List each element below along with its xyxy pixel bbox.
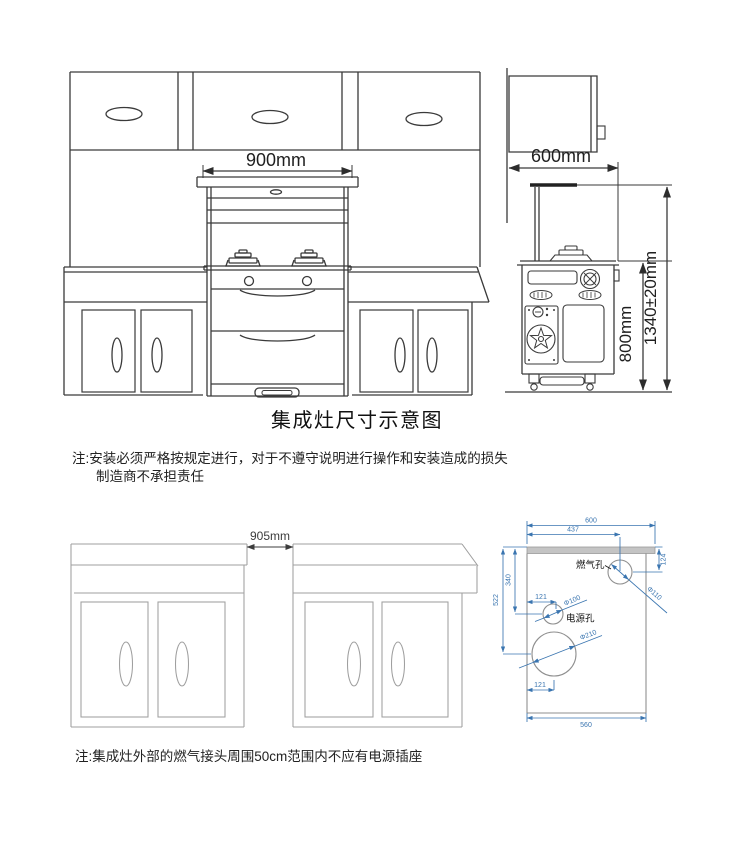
cabinet-handle: [106, 108, 142, 121]
caster-icon: [587, 384, 593, 390]
front-view: 900mm: [64, 72, 489, 397]
door-handle: [176, 642, 189, 686]
upper-cabinet-side: [509, 76, 605, 152]
fan-blade-icon: [531, 328, 552, 348]
drawer-handle: [240, 290, 315, 296]
side-total-height-label: 1340±20mm: [641, 251, 660, 345]
stove-front: [197, 177, 358, 397]
dim-bottom-width: 560: [580, 722, 592, 729]
side-view: 600mm 1340±20mm 800mm: [505, 68, 672, 392]
gap-view: 905mm: [71, 529, 478, 727]
vent-oval: [579, 291, 601, 300]
dim-gas-hole-x: 437: [567, 527, 579, 534]
vent-oval: [530, 291, 552, 300]
gas-hole-label: 燃气孔: [576, 559, 605, 571]
countertop-back-strip: [527, 547, 655, 554]
width-dimension-900: 900mm: [203, 150, 352, 178]
dim-gas-hole-y: 124: [661, 554, 668, 566]
socket-note: 注:集成灶外部的燃气接头周围50cm范围内不应有电源插座: [75, 748, 422, 764]
blower-panel: [525, 306, 558, 364]
left-base-cabinet: [71, 544, 247, 727]
cabinet-handle-side: [597, 126, 605, 139]
body-height-dimension-800: 800mm: [616, 263, 643, 390]
door-handle: [120, 642, 133, 686]
installation-diagram-page: 900mm: [0, 0, 735, 850]
cabinet-handle: [252, 111, 288, 124]
dim-drain-hole-x: 121: [534, 682, 546, 689]
door-handle: [427, 338, 437, 372]
adjustable-feet: [529, 374, 595, 390]
door-handle: [392, 642, 405, 686]
fan-icon: [581, 270, 600, 289]
dim-power-hole-y: 340: [506, 574, 513, 586]
side-depth-dim-label: 600mm: [531, 146, 591, 166]
burner-icon: [225, 250, 261, 266]
gap-dim-label: 905mm: [250, 529, 290, 543]
front-width-dim-label: 900mm: [246, 150, 306, 170]
display-panel: [528, 271, 577, 284]
stove-side: [517, 187, 619, 390]
diagram-title: 集成灶尺寸示意图: [271, 409, 443, 432]
hood-badge: [271, 190, 282, 194]
ignition-knob: [533, 307, 548, 317]
side-body-height-label: 800mm: [616, 306, 635, 363]
door-handle: [112, 338, 122, 372]
diagram-canvas: 900mm: [0, 0, 735, 850]
depth-dimension-600: 600mm: [509, 146, 618, 261]
burner-side-icon: [550, 255, 592, 261]
cutout-view: 600 437 124 340 522 121 121 560: [493, 518, 668, 730]
dim-power-hole-x: 121: [535, 594, 547, 601]
side-access-panel: [563, 305, 604, 362]
install-note-line1: 注:安装必须严格按规定进行，对于不遵守说明进行操作和安装造成的损失: [72, 450, 508, 466]
gap-dimension-905: 905mm: [247, 529, 293, 547]
control-knob: [303, 277, 312, 286]
door-handle: [152, 338, 162, 372]
dim-drain-hole-dia: Φ210: [579, 629, 598, 642]
dim-gas-hole-dia: Φ110: [645, 586, 662, 602]
burner-icon: [291, 250, 327, 266]
door-handle: [348, 642, 361, 686]
control-knob: [245, 277, 254, 286]
dim-drain-hole-y: 522: [493, 594, 500, 606]
total-height-dimension-1340: 1340±20mm: [641, 187, 667, 390]
power-hole-label: 电源孔: [566, 613, 595, 625]
door-handle: [395, 338, 405, 372]
dim-top-width: 600: [585, 518, 597, 525]
right-base-cabinet: [293, 544, 478, 727]
caster-icon: [531, 384, 537, 390]
drawer-handle: [240, 335, 315, 341]
cabinet-handle: [406, 113, 442, 126]
install-note-line2: 制造商不承担责任: [96, 469, 204, 484]
